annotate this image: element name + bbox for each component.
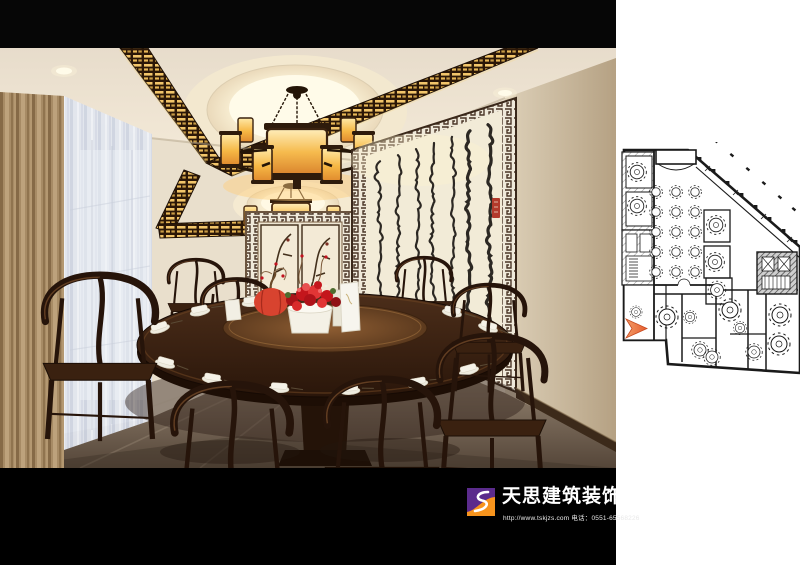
ceiling-black-band — [0, 0, 616, 48]
rendering-scene — [0, 0, 616, 468]
brand-name: 天思建筑装饰 — [502, 487, 622, 508]
curtain-tan — [0, 92, 64, 468]
company-logo — [467, 488, 495, 516]
plan-service-core — [757, 252, 797, 294]
phone-number: 电话：0551-65568226 — [571, 515, 639, 522]
floor-plan-drawing — [620, 142, 800, 387]
website-url: http://www.tskjzs.com — [503, 515, 569, 522]
logo-s-mark-icon — [467, 488, 495, 516]
presentation-board: 天思建筑装饰 http://www.tskjzs.com 电话：0551-655… — [0, 0, 800, 565]
brand-contact: http://www.tskjzs.com 电话：0551-65568226 — [503, 512, 640, 522]
floor-plan — [620, 142, 800, 387]
red-seal — [492, 198, 500, 218]
interior-rendering — [0, 0, 616, 468]
footer-bar: 天思建筑装饰 http://www.tskjzs.com 电话：0551-655… — [0, 468, 616, 565]
